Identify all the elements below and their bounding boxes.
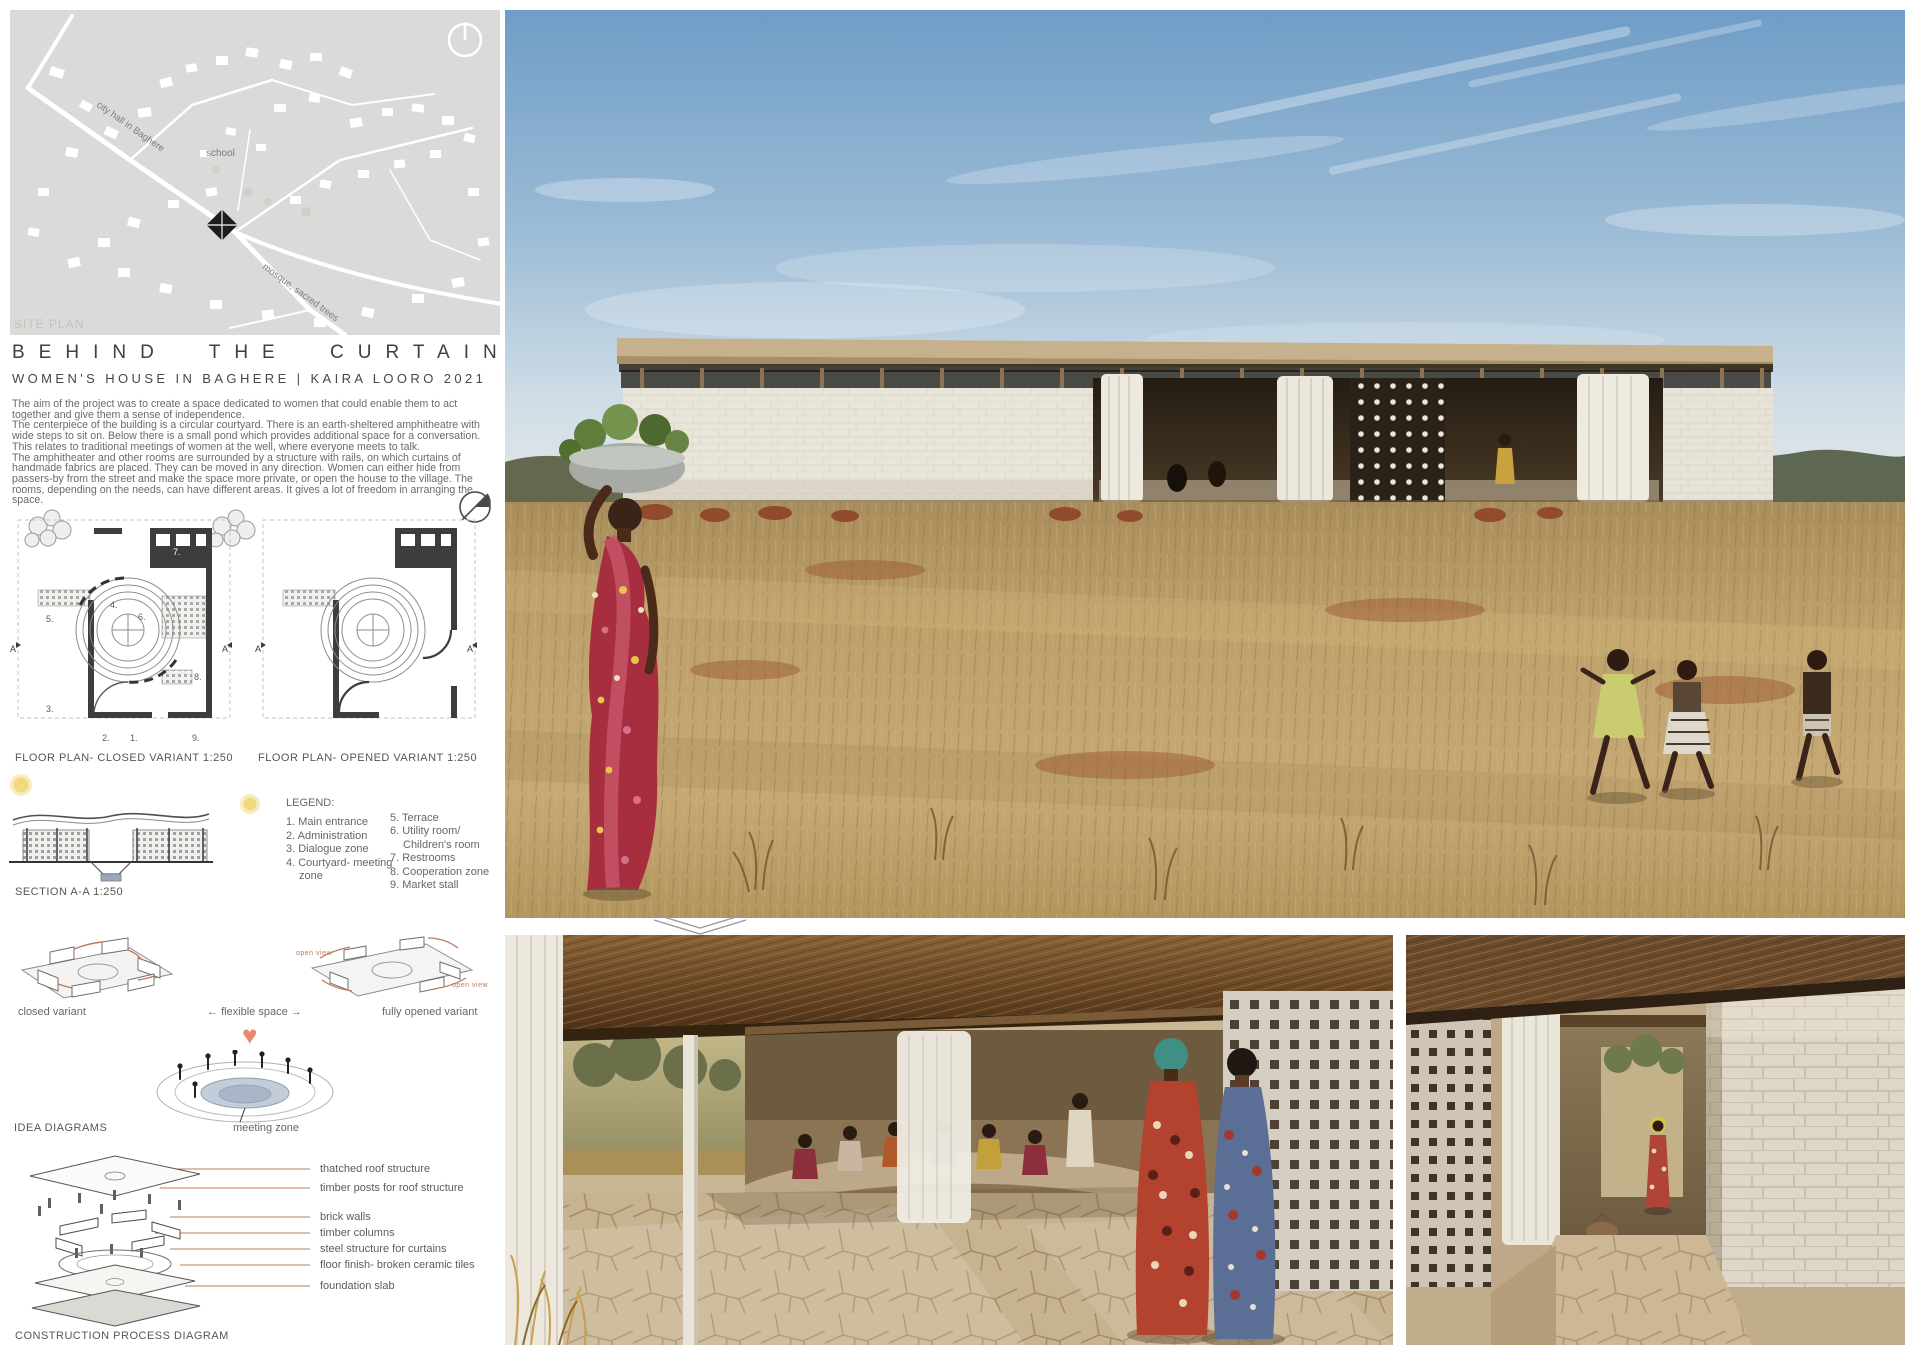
legend-item: 7. Restrooms [390,852,489,865]
render-corridor-view [1406,935,1905,1345]
flexible-space-text: flexible space [221,1006,288,1018]
toilet-block [150,528,212,568]
idea-axon-diagrams [10,918,490,1006]
construction-process-heading: CONSTRUCTION PROCESS DIAGRAM [15,1330,229,1342]
chevron-down-icon [652,912,748,936]
corridor-curtain [1502,1001,1560,1245]
site-plan-caption: SITE PLAN [14,317,84,331]
room-number-9: 9. [192,733,200,743]
construction-label: timber posts for roof structure [320,1181,464,1195]
floor-plan-opened-label: FLOOR PLAN- OPENED VARIANT 1:250 [258,752,477,764]
legend-item: 9. Market stall [390,879,489,892]
site-plan-map: city hall in Baghere school mosque, sacr… [10,10,500,335]
legend-item: 2. Administration [286,830,392,843]
legend-item: 4. Courtyard- meeting [286,857,392,870]
flexible-space-label: ← flexible space → [207,1006,302,1018]
header-block: BEHIND THE CURTAIN WOMEN'S HOUSE IN BAGH… [12,342,511,386]
arrow-left-icon: ← [207,1006,218,1018]
sun-icon [238,792,262,816]
legend-item: 5. Terrace [390,812,489,825]
room-number-3: 3. [46,704,54,714]
axon-closed-label: closed variant [18,1006,86,1018]
construction-label: steel structure for curtains [320,1242,447,1256]
construction-label: foundation slab [320,1279,395,1293]
legend-right-column: 5. Terrace 6. Utility room/ Children's r… [390,812,489,892]
axon-opened-label: fully opened variant [382,1006,477,1018]
floor-plan-closed-diagram: 1. 2. 3. 4. 5. 6. 7. 8. 9. A A' [10,520,232,743]
perforated-screen-left [1406,993,1491,1293]
render-exterior-view [505,10,1905,918]
map-label-school: school [206,148,235,159]
building [617,338,1773,507]
legend: LEGEND: 1. Main entrance 2. Administrati… [286,797,392,883]
legend-item-continuation: zone [286,870,392,883]
legend-item: 3. Dialogue zone [286,843,392,856]
axon-closed-diagram [22,938,172,998]
open-view-note: open view [296,950,332,957]
page-title: BEHIND THE CURTAIN [12,342,511,364]
idea-diagrams-heading: IDEA DIAGRAMS [14,1122,107,1134]
project-description: The aim of the project was to create a s… [12,399,498,506]
construction-label: timber columns [320,1226,395,1240]
meeting-zone-label: meeting zone [233,1122,299,1134]
floor-plan-opened-diagram: A A' [255,520,477,718]
room-number-7: 7. [173,547,181,557]
heart-icon: ♥ [242,1022,257,1048]
open-view-note: open view [452,982,488,989]
legend-item: 6. Utility room/ [390,825,489,838]
floor-plan-closed-label: FLOOR PLAN- CLOSED VARIANT 1:250 [15,752,233,764]
tree-cluster-icon [25,510,255,547]
presentation-board: city hall in Baghere school mosque, sacr… [0,0,1920,1356]
legend-item: 8. Cooperation zone [390,866,489,879]
room-number-5: 5. [46,614,54,624]
room-number-6: 6. [138,612,146,622]
floor-plans: 1. 2. 3. 4. 5. 6. 7. 8. 9. A A' [10,500,500,750]
section-drawing [5,790,217,885]
perforated-brick-screen [1350,378,1445,502]
room-number-4: 4. [110,600,118,610]
legend-title: LEGEND: [286,797,392,810]
legend-item: 1. Main entrance [286,816,392,829]
page-subtitle: WOMEN'S HOUSE IN BAGHERE | KAIRA LOORO 2… [12,371,511,386]
description-paragraph-3: The amphitheater and other rooms are sur… [12,453,498,507]
room-number-8: 8. [194,672,202,682]
description-paragraph-2: The centerpiece of the building is a cir… [12,420,498,452]
room-number-2: 2. [102,733,110,743]
render-courtyard-interior [505,935,1393,1345]
construction-label: brick walls [320,1210,371,1224]
section-label: SECTION A-A 1:250 [15,886,123,898]
legend-item-continuation: Children's room [390,839,489,852]
construction-diagram [20,1148,312,1333]
section-marker-a: A [10,644,16,654]
site-plan-graphic: city hall in Baghere school mosque, sacr… [10,10,500,335]
room-number-1: 1. [130,733,138,743]
construction-label: floor finish- broken ceramic tiles [320,1258,475,1272]
arrow-right-icon: → [291,1006,302,1018]
construction-label: thatched roof structure [320,1162,430,1176]
axon-opened-diagram [312,937,472,996]
meeting-zone-diagram [150,1050,340,1126]
section-marker-a: A [255,644,261,654]
description-paragraph-1: The aim of the project was to create a s… [12,399,498,420]
